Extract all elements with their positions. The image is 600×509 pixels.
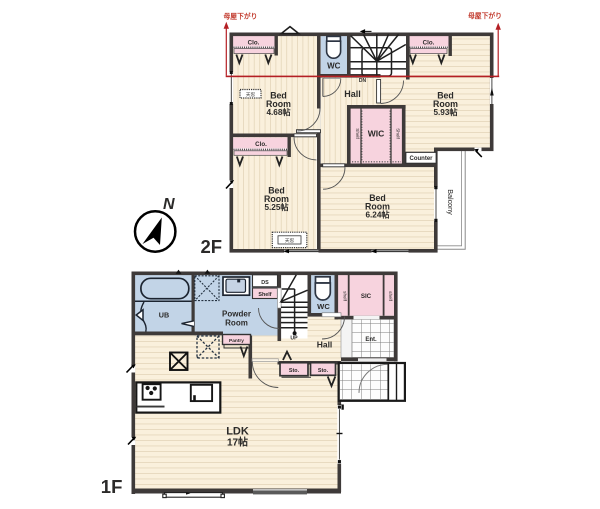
svg-text:shelf: shelf [388, 291, 393, 301]
svg-text:1F: 1F [101, 476, 123, 497]
svg-text:5.93帖: 5.93帖 [433, 107, 457, 117]
svg-text:Shelf: Shelf [355, 128, 360, 139]
svg-text:DN: DN [359, 78, 367, 84]
svg-text:WC: WC [327, 62, 341, 71]
svg-text:WIC: WIC [368, 129, 385, 139]
svg-text:LDK: LDK [226, 426, 249, 438]
svg-text:4.68帖: 4.68帖 [266, 107, 290, 117]
svg-text:Sto.: Sto. [289, 368, 300, 374]
svg-text:2F: 2F [201, 236, 223, 257]
svg-text:天窓: 天窓 [285, 237, 295, 244]
svg-text:Hall: Hall [317, 340, 333, 350]
svg-text:WC: WC [317, 302, 330, 311]
svg-text:母屋下がり: 母屋下がり [468, 11, 502, 20]
svg-text:Shelf: Shelf [258, 292, 271, 298]
svg-text:Powder: Powder [222, 310, 251, 319]
svg-text:5.25帖: 5.25帖 [264, 202, 288, 212]
svg-text:Sto.: Sto. [318, 368, 329, 374]
svg-text:Clo.: Clo. [255, 141, 267, 148]
svg-text:母屋下がり: 母屋下がり [224, 12, 258, 21]
svg-text:Ent.: Ent. [365, 337, 377, 343]
svg-text:Clo.: Clo. [423, 39, 435, 46]
svg-text:Hall: Hall [344, 89, 361, 99]
svg-text:DS: DS [261, 280, 269, 286]
svg-text:UB: UB [159, 311, 169, 320]
svg-text:Room: Room [225, 318, 248, 327]
svg-text:shelf: shelf [343, 291, 348, 301]
svg-text:Balcony: Balcony [446, 189, 455, 215]
svg-text:Clo.: Clo. [248, 39, 260, 46]
svg-text:天窓: 天窓 [246, 91, 256, 98]
svg-text:Pantry: Pantry [229, 338, 244, 344]
svg-text:N: N [163, 196, 175, 213]
svg-text:6.24帖: 6.24帖 [365, 210, 389, 220]
svg-text:SIC: SIC [361, 293, 372, 300]
svg-text:Shelf: Shelf [395, 128, 400, 139]
svg-text:17帖: 17帖 [227, 436, 248, 449]
svg-text:UP: UP [290, 336, 298, 342]
svg-text:Counter: Counter [410, 156, 434, 162]
